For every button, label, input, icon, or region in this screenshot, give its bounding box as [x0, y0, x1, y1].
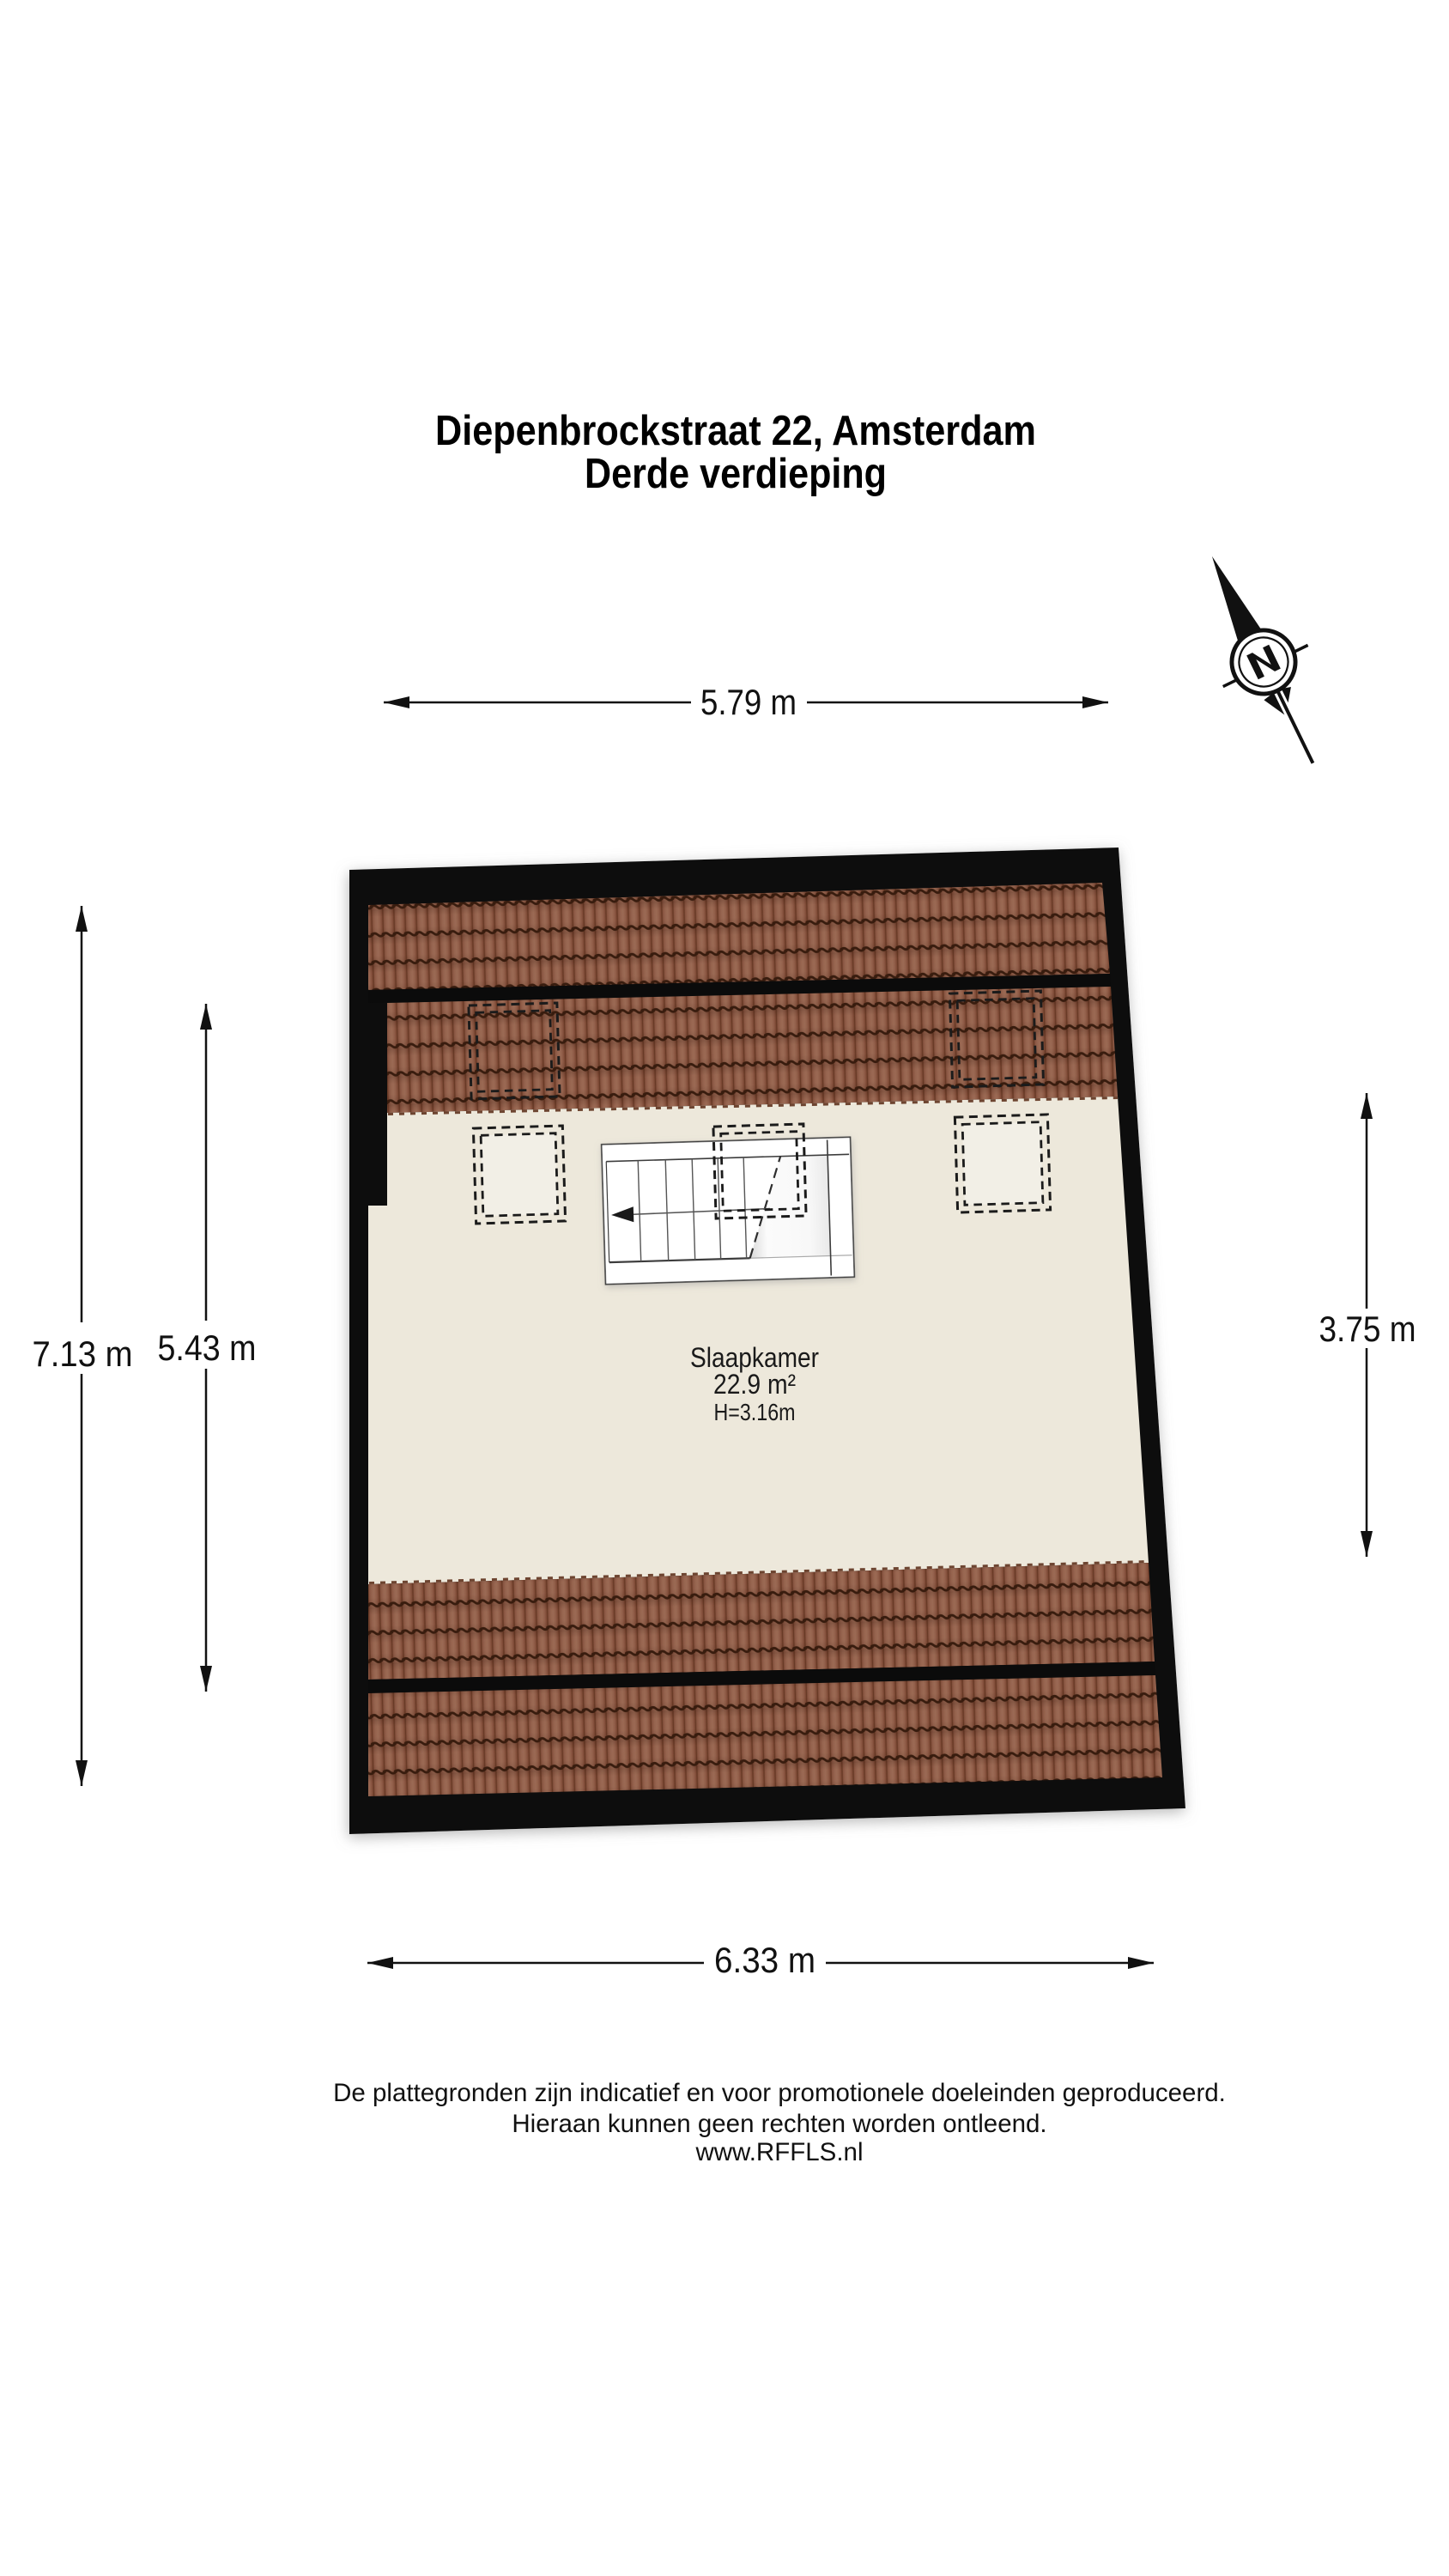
svg-text:Hieraan kunnen geen rechten wo: Hieraan kunnen geen rechten worden ontle… — [512, 2110, 1046, 2138]
svg-text:Derde verdieping: Derde verdieping — [585, 451, 887, 497]
svg-text:5.79 m: 5.79 m — [700, 682, 797, 722]
svg-text:6.33 m: 6.33 m — [714, 1940, 815, 1980]
svg-text:3.75 m: 3.75 m — [1319, 1309, 1416, 1349]
svg-text:www.RFFLS.nl: www.RFFLS.nl — [694, 2138, 863, 2166]
svg-text:22.9 m²: 22.9 m² — [713, 1369, 796, 1400]
svg-text:Diepenbrockstraat 22, Amsterda: Diepenbrockstraat 22, Amsterdam — [435, 408, 1036, 454]
svg-text:5.43 m: 5.43 m — [158, 1327, 257, 1368]
svg-text:De plattegronden zijn indicati: De plattegronden zijn indicatief en voor… — [333, 2079, 1226, 2107]
svg-text:H=3.16m: H=3.16m — [714, 1399, 796, 1425]
svg-text:7.13 m: 7.13 m — [33, 1334, 133, 1374]
